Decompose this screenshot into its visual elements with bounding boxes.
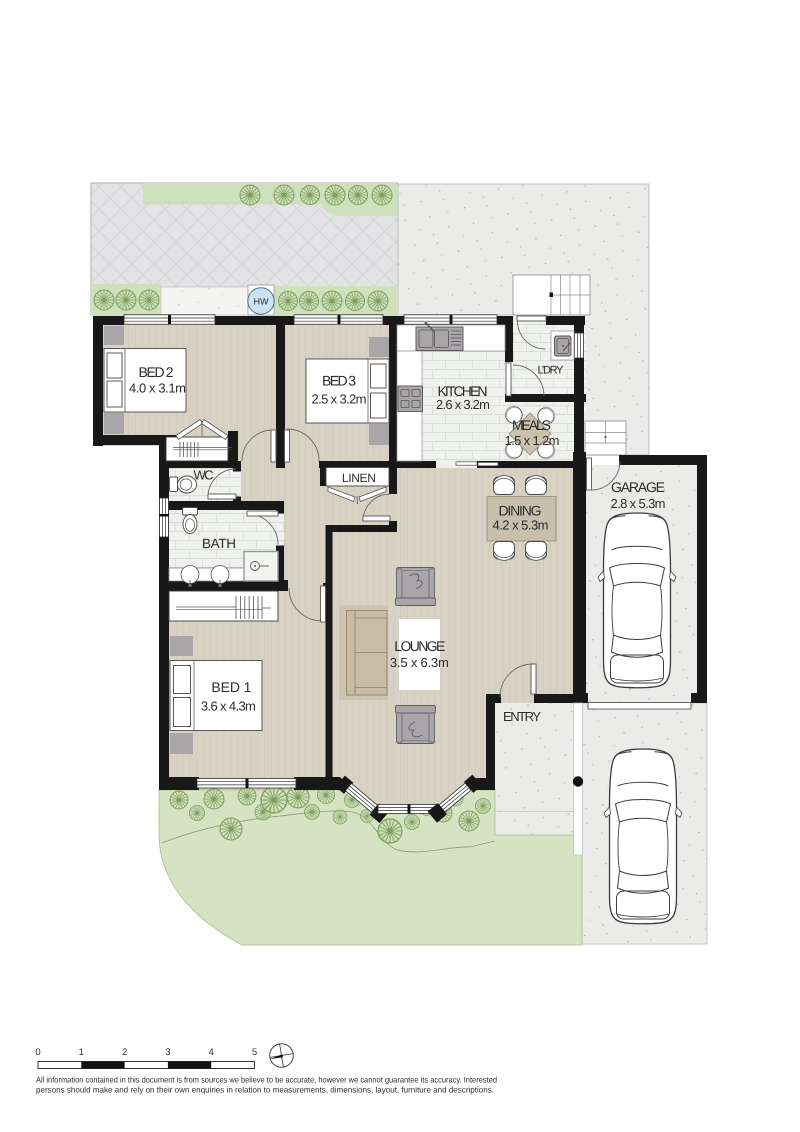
svg-text:4.2 x 5.3m: 4.2 x 5.3m xyxy=(493,518,549,533)
svg-text:4: 4 xyxy=(209,1047,214,1058)
svg-text:DINING: DINING xyxy=(499,503,542,519)
svg-text:ENTRY: ENTRY xyxy=(503,709,541,724)
svg-text:2.6 x 3.2m: 2.6 x 3.2m xyxy=(436,397,490,412)
svg-text:L’DRY: L’DRY xyxy=(538,365,565,377)
svg-text:LINEN: LINEN xyxy=(342,471,376,485)
svg-text:HW: HW xyxy=(254,297,269,307)
svg-text:BED 1: BED 1 xyxy=(211,679,251,695)
svg-text:5: 5 xyxy=(252,1047,257,1058)
svg-text:3: 3 xyxy=(165,1047,170,1058)
svg-text:4.0 x 3.1m: 4.0 x 3.1m xyxy=(129,381,186,396)
svg-text:persons should make and rely o: persons should make and rely on their ow… xyxy=(36,1086,494,1095)
svg-text:MEALS: MEALS xyxy=(512,417,551,433)
svg-text:BED 3: BED 3 xyxy=(322,373,356,389)
svg-text:LOUNGE: LOUNGE xyxy=(394,638,445,654)
svg-text:3.6 x 4.3m: 3.6 x 4.3m xyxy=(201,699,256,714)
svg-text:BATH: BATH xyxy=(202,536,236,551)
svg-text:0: 0 xyxy=(35,1047,40,1058)
svg-text:All information contained in t: All information contained in this docume… xyxy=(36,1075,497,1084)
svg-text:2.5 x 3.2m: 2.5 x 3.2m xyxy=(312,392,367,407)
svg-text:2: 2 xyxy=(122,1047,127,1058)
svg-text:GARAGE: GARAGE xyxy=(611,479,665,495)
svg-text:BED 2: BED 2 xyxy=(139,364,174,380)
svg-text:WC: WC xyxy=(194,468,214,483)
svg-text:3.5 x 6.3m: 3.5 x 6.3m xyxy=(390,655,449,670)
svg-text:1: 1 xyxy=(79,1047,84,1058)
svg-text:2.8 x 5.3m: 2.8 x 5.3m xyxy=(611,496,666,511)
svg-text:1.5 x 1.2m: 1.5 x 1.2m xyxy=(505,433,560,448)
